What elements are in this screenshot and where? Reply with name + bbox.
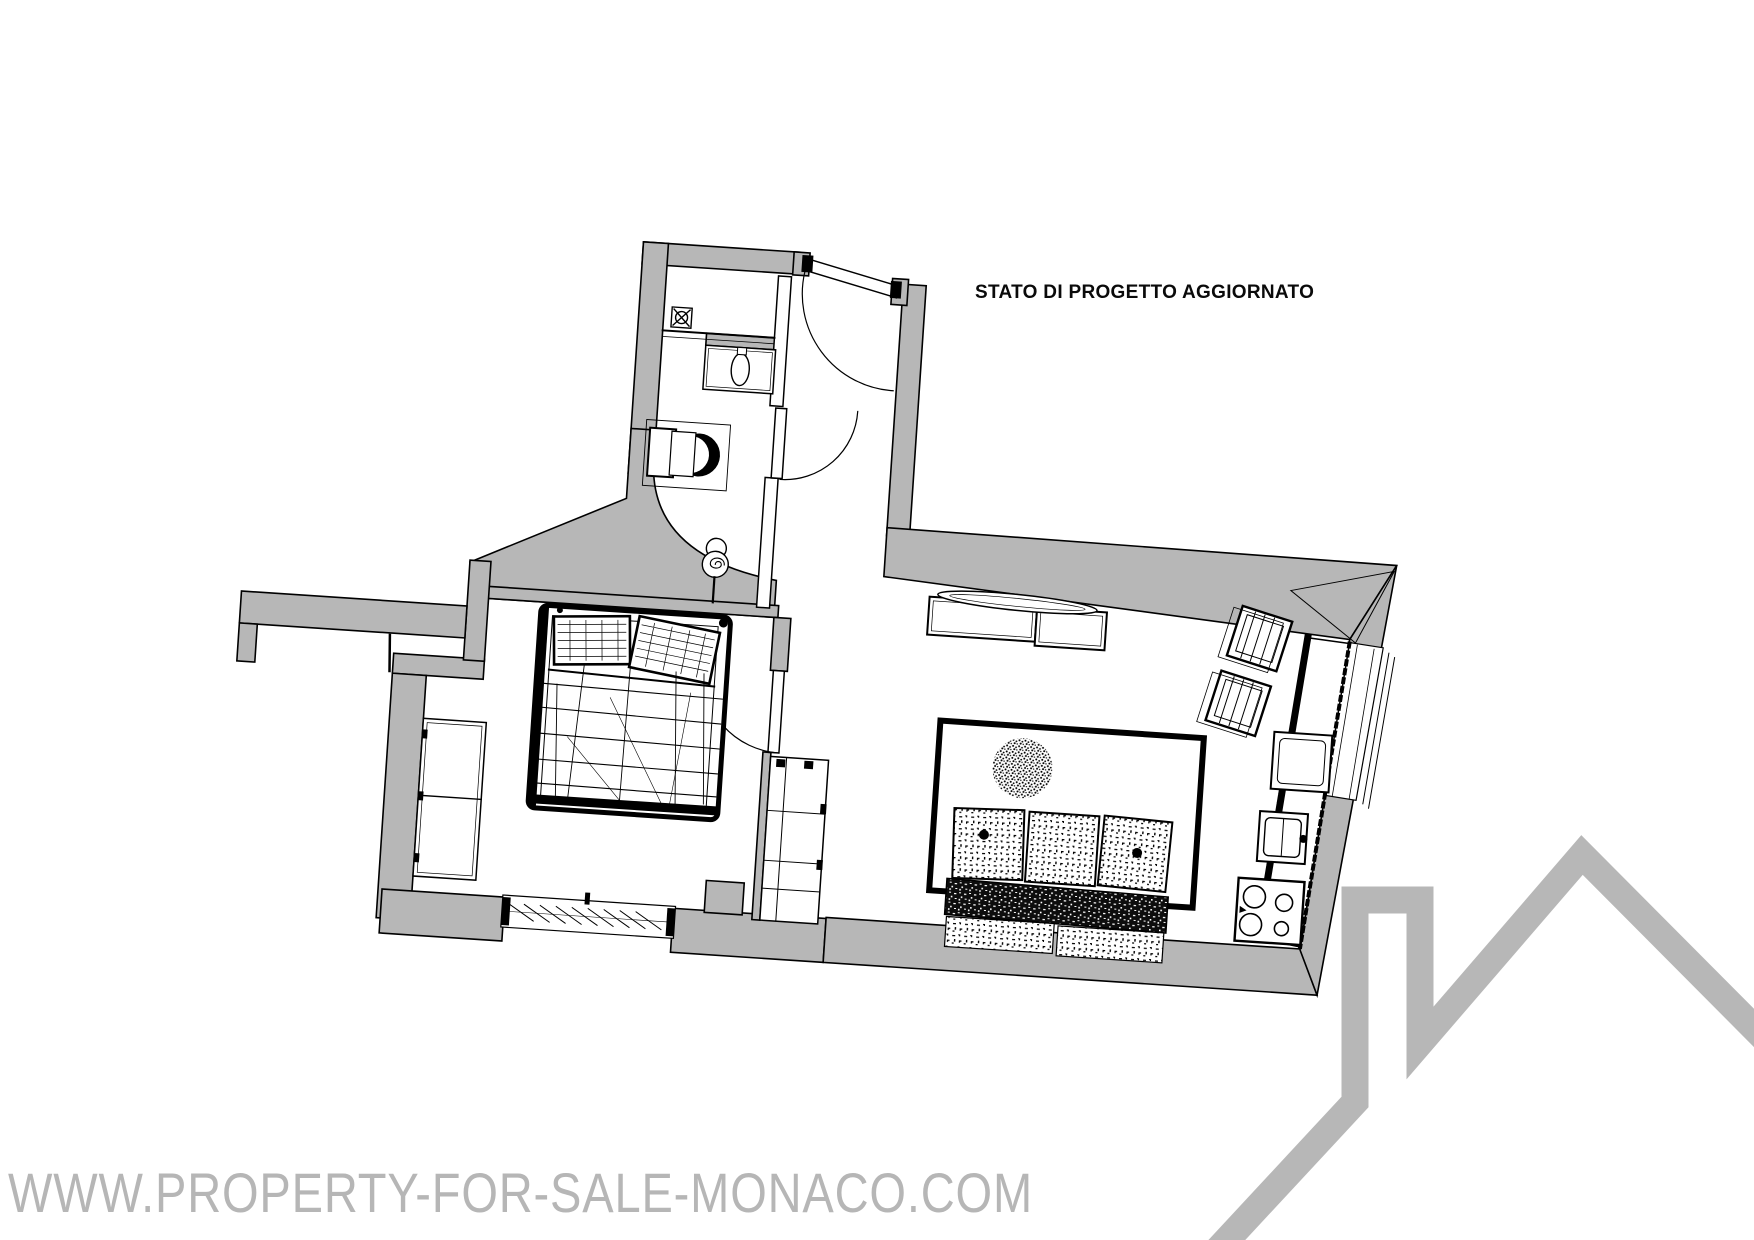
sofa-cushion: [1025, 812, 1099, 886]
entrance-door-stop: [890, 281, 901, 298]
wall-hall-right: [887, 284, 927, 537]
wall-bedroom-bottom-left: [379, 889, 505, 941]
washbasin: [703, 345, 776, 394]
floor-plan-canvas: STATO DI PROGETTO AGGIORNATO WWW.PROPERT…: [0, 0, 1754, 1240]
kitchen-sink: [1257, 811, 1309, 864]
wall-pillar: [704, 880, 744, 914]
sofa-front-cushion: [1056, 926, 1164, 963]
double-bed: [528, 605, 731, 820]
bathroom-door-leaf: [771, 408, 787, 479]
sofa-front-cushion: [944, 916, 1054, 953]
wall-spur: [239, 591, 467, 638]
bedroom-door-leaf: [768, 670, 784, 753]
entrance-door-hinge: [802, 255, 813, 272]
hall-closet: [760, 756, 830, 924]
living-room: [906, 586, 1212, 965]
stove-icon: [1234, 878, 1304, 945]
wall-spur-hook: [237, 623, 257, 662]
wall-spur-tick: [388, 635, 392, 671]
watermark-text: WWW.PROPERTY-FOR-SALE-MONACO.COM: [8, 1161, 1033, 1224]
toilet: [642, 419, 730, 490]
floor-plan-page: STATO DI PROGETTO AGGIORNATO WWW.PROPERT…: [0, 0, 1754, 1240]
chair: [1197, 668, 1271, 740]
page-title: STATO DI PROGETTO AGGIORNATO: [975, 282, 1314, 303]
wardrobe: [413, 718, 486, 880]
entrance-door-leaf: [806, 259, 899, 298]
shower-drain-icon: [671, 307, 692, 328]
bedroom-window: [501, 887, 676, 938]
plant-icon: [991, 736, 1055, 800]
wall-bedroom-left-upper: [463, 560, 491, 661]
sofa-cushion: [952, 808, 1024, 880]
bedroom: [410, 598, 731, 941]
sofa: [942, 805, 1173, 963]
bathroom-door-swing: [780, 407, 858, 485]
wall-mid-partition-upper: [770, 617, 790, 671]
pillow: [554, 616, 630, 664]
kitchen-cabinet: [1271, 732, 1333, 793]
